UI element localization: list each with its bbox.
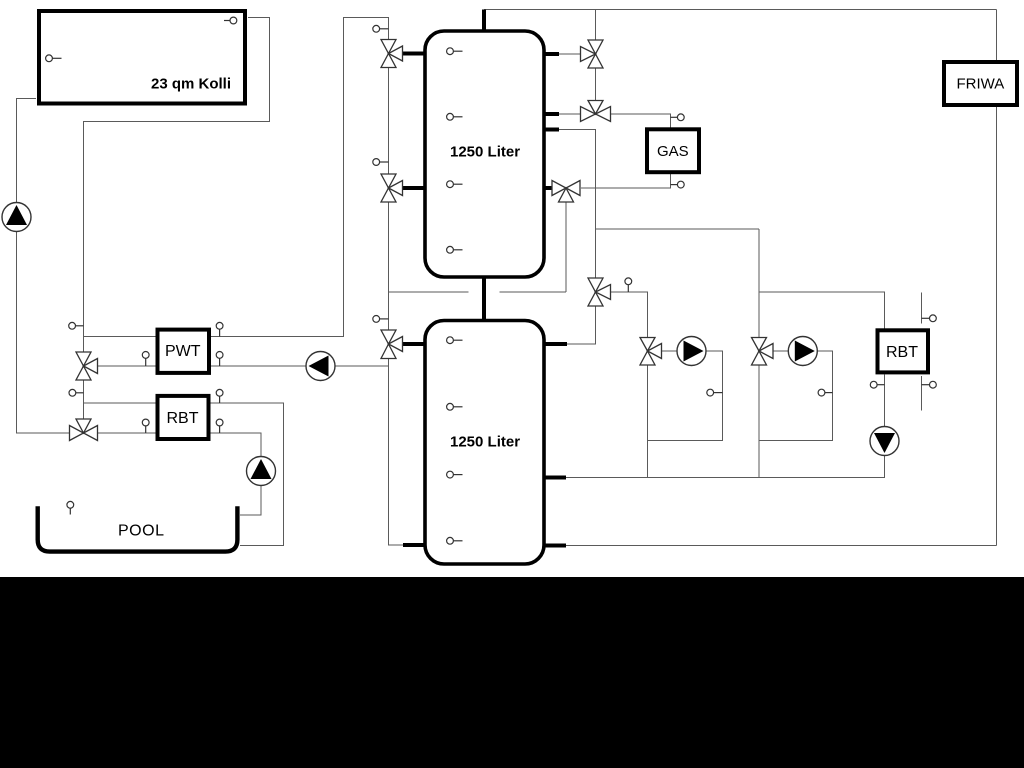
svg-text:FRIWA: FRIWA bbox=[957, 76, 1005, 93]
svg-text:1250 Liter: 1250 Liter bbox=[450, 144, 520, 161]
svg-text:POOL: POOL bbox=[118, 523, 164, 540]
svg-text:RBT: RBT bbox=[886, 344, 918, 361]
svg-text:23 qm Kolli: 23 qm Kolli bbox=[151, 76, 231, 93]
svg-text:GAS: GAS bbox=[657, 143, 689, 160]
svg-text:RBT: RBT bbox=[167, 410, 199, 427]
svg-text:PWT: PWT bbox=[165, 343, 201, 360]
svg-text:1250 Liter: 1250 Liter bbox=[450, 434, 520, 451]
